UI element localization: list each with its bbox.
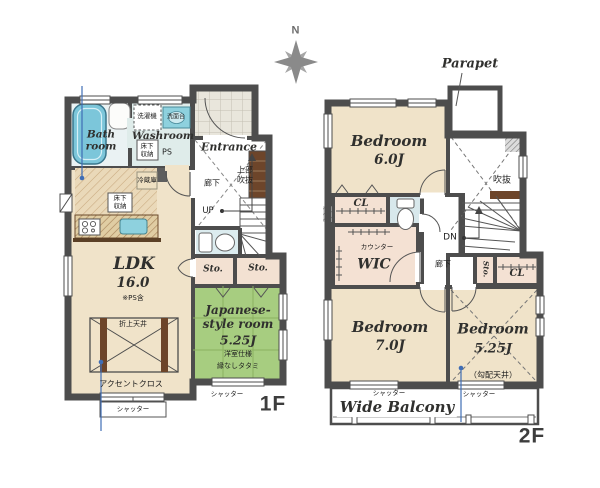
washroom-door-gap (165, 165, 189, 171)
toilet-1f (193, 228, 240, 256)
vanity-icon (163, 107, 190, 128)
toilet-tank-icon (199, 233, 212, 252)
floorplan-page: N Bath room 洗濯機 洗面台 Washroom 床下 収納 PS En… (0, 0, 600, 488)
washer-box (134, 105, 161, 130)
closet1-area (333, 195, 388, 225)
bath-counter-icon (109, 103, 130, 129)
toilet-2f (397, 199, 414, 230)
compass-icon (274, 40, 318, 84)
void-hatch (505, 137, 522, 152)
storage1-area (193, 256, 235, 286)
stove-icon (79, 219, 100, 235)
hall2-lower (448, 255, 475, 287)
fridge-box (137, 172, 157, 189)
toilet-bowl-icon (216, 234, 235, 251)
toilet2-bowl-icon (398, 209, 414, 230)
parapet-box (450, 88, 500, 133)
floorplan-drawing (0, 0, 600, 488)
japanese-room-area (193, 286, 283, 382)
bedroom7-area (328, 287, 448, 385)
bathtub-icon (73, 104, 106, 164)
kitchen-sink-icon (120, 219, 147, 234)
floor1-plan (60, 86, 287, 431)
balcony (331, 388, 538, 424)
bath-door-gap (127, 118, 133, 148)
bedroom6-area (328, 103, 448, 195)
storage2-area (235, 256, 283, 286)
floor2-plan (323, 73, 544, 424)
floor-storage2-box (108, 193, 132, 212)
porch-area (193, 88, 255, 138)
toilet2-tank-icon (397, 199, 414, 208)
storage2f-area (475, 255, 495, 285)
floor-storage1-box (137, 140, 158, 160)
